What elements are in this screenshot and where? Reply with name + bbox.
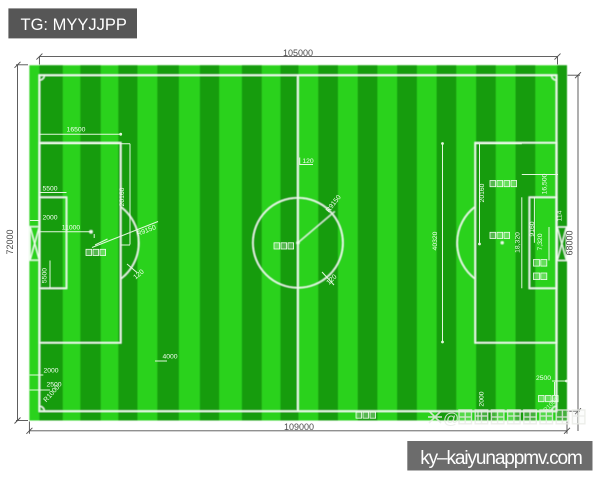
- svg-text:9160: 9160: [529, 221, 536, 236]
- svg-text:68000: 68000: [565, 230, 575, 255]
- svg-text:18,320: 18,320: [515, 232, 522, 253]
- svg-text:TG: MYYJJPP: TG: MYYJJPP: [21, 16, 127, 34]
- svg-text:2000: 2000: [479, 391, 486, 406]
- svg-text:@: @: [443, 411, 459, 428]
- svg-text:ky–kaiyunappmv.com: ky–kaiyunappmv.com: [420, 448, 582, 469]
- svg-text:20160: 20160: [479, 183, 486, 202]
- svg-text:105000: 105000: [283, 48, 313, 58]
- svg-text:72000: 72000: [5, 229, 15, 254]
- svg-text:11000: 11000: [62, 224, 81, 231]
- svg-text:5500: 5500: [42, 186, 57, 193]
- svg-text:40320: 40320: [432, 231, 439, 250]
- svg-text:2000: 2000: [43, 368, 58, 375]
- svg-text:20160: 20160: [119, 187, 126, 206]
- svg-text:5500: 5500: [42, 268, 49, 283]
- svg-text:120: 120: [302, 158, 314, 165]
- svg-text:4000: 4000: [162, 354, 177, 361]
- svg-text:7,320: 7,320: [537, 233, 544, 250]
- svg-text:16500: 16500: [67, 127, 86, 134]
- svg-text:114: 114: [557, 210, 564, 221]
- svg-text:2000: 2000: [42, 215, 57, 222]
- svg-text:16,500: 16,500: [542, 173, 549, 194]
- svg-text:109000: 109000: [284, 422, 314, 432]
- svg-text:2500: 2500: [536, 375, 551, 382]
